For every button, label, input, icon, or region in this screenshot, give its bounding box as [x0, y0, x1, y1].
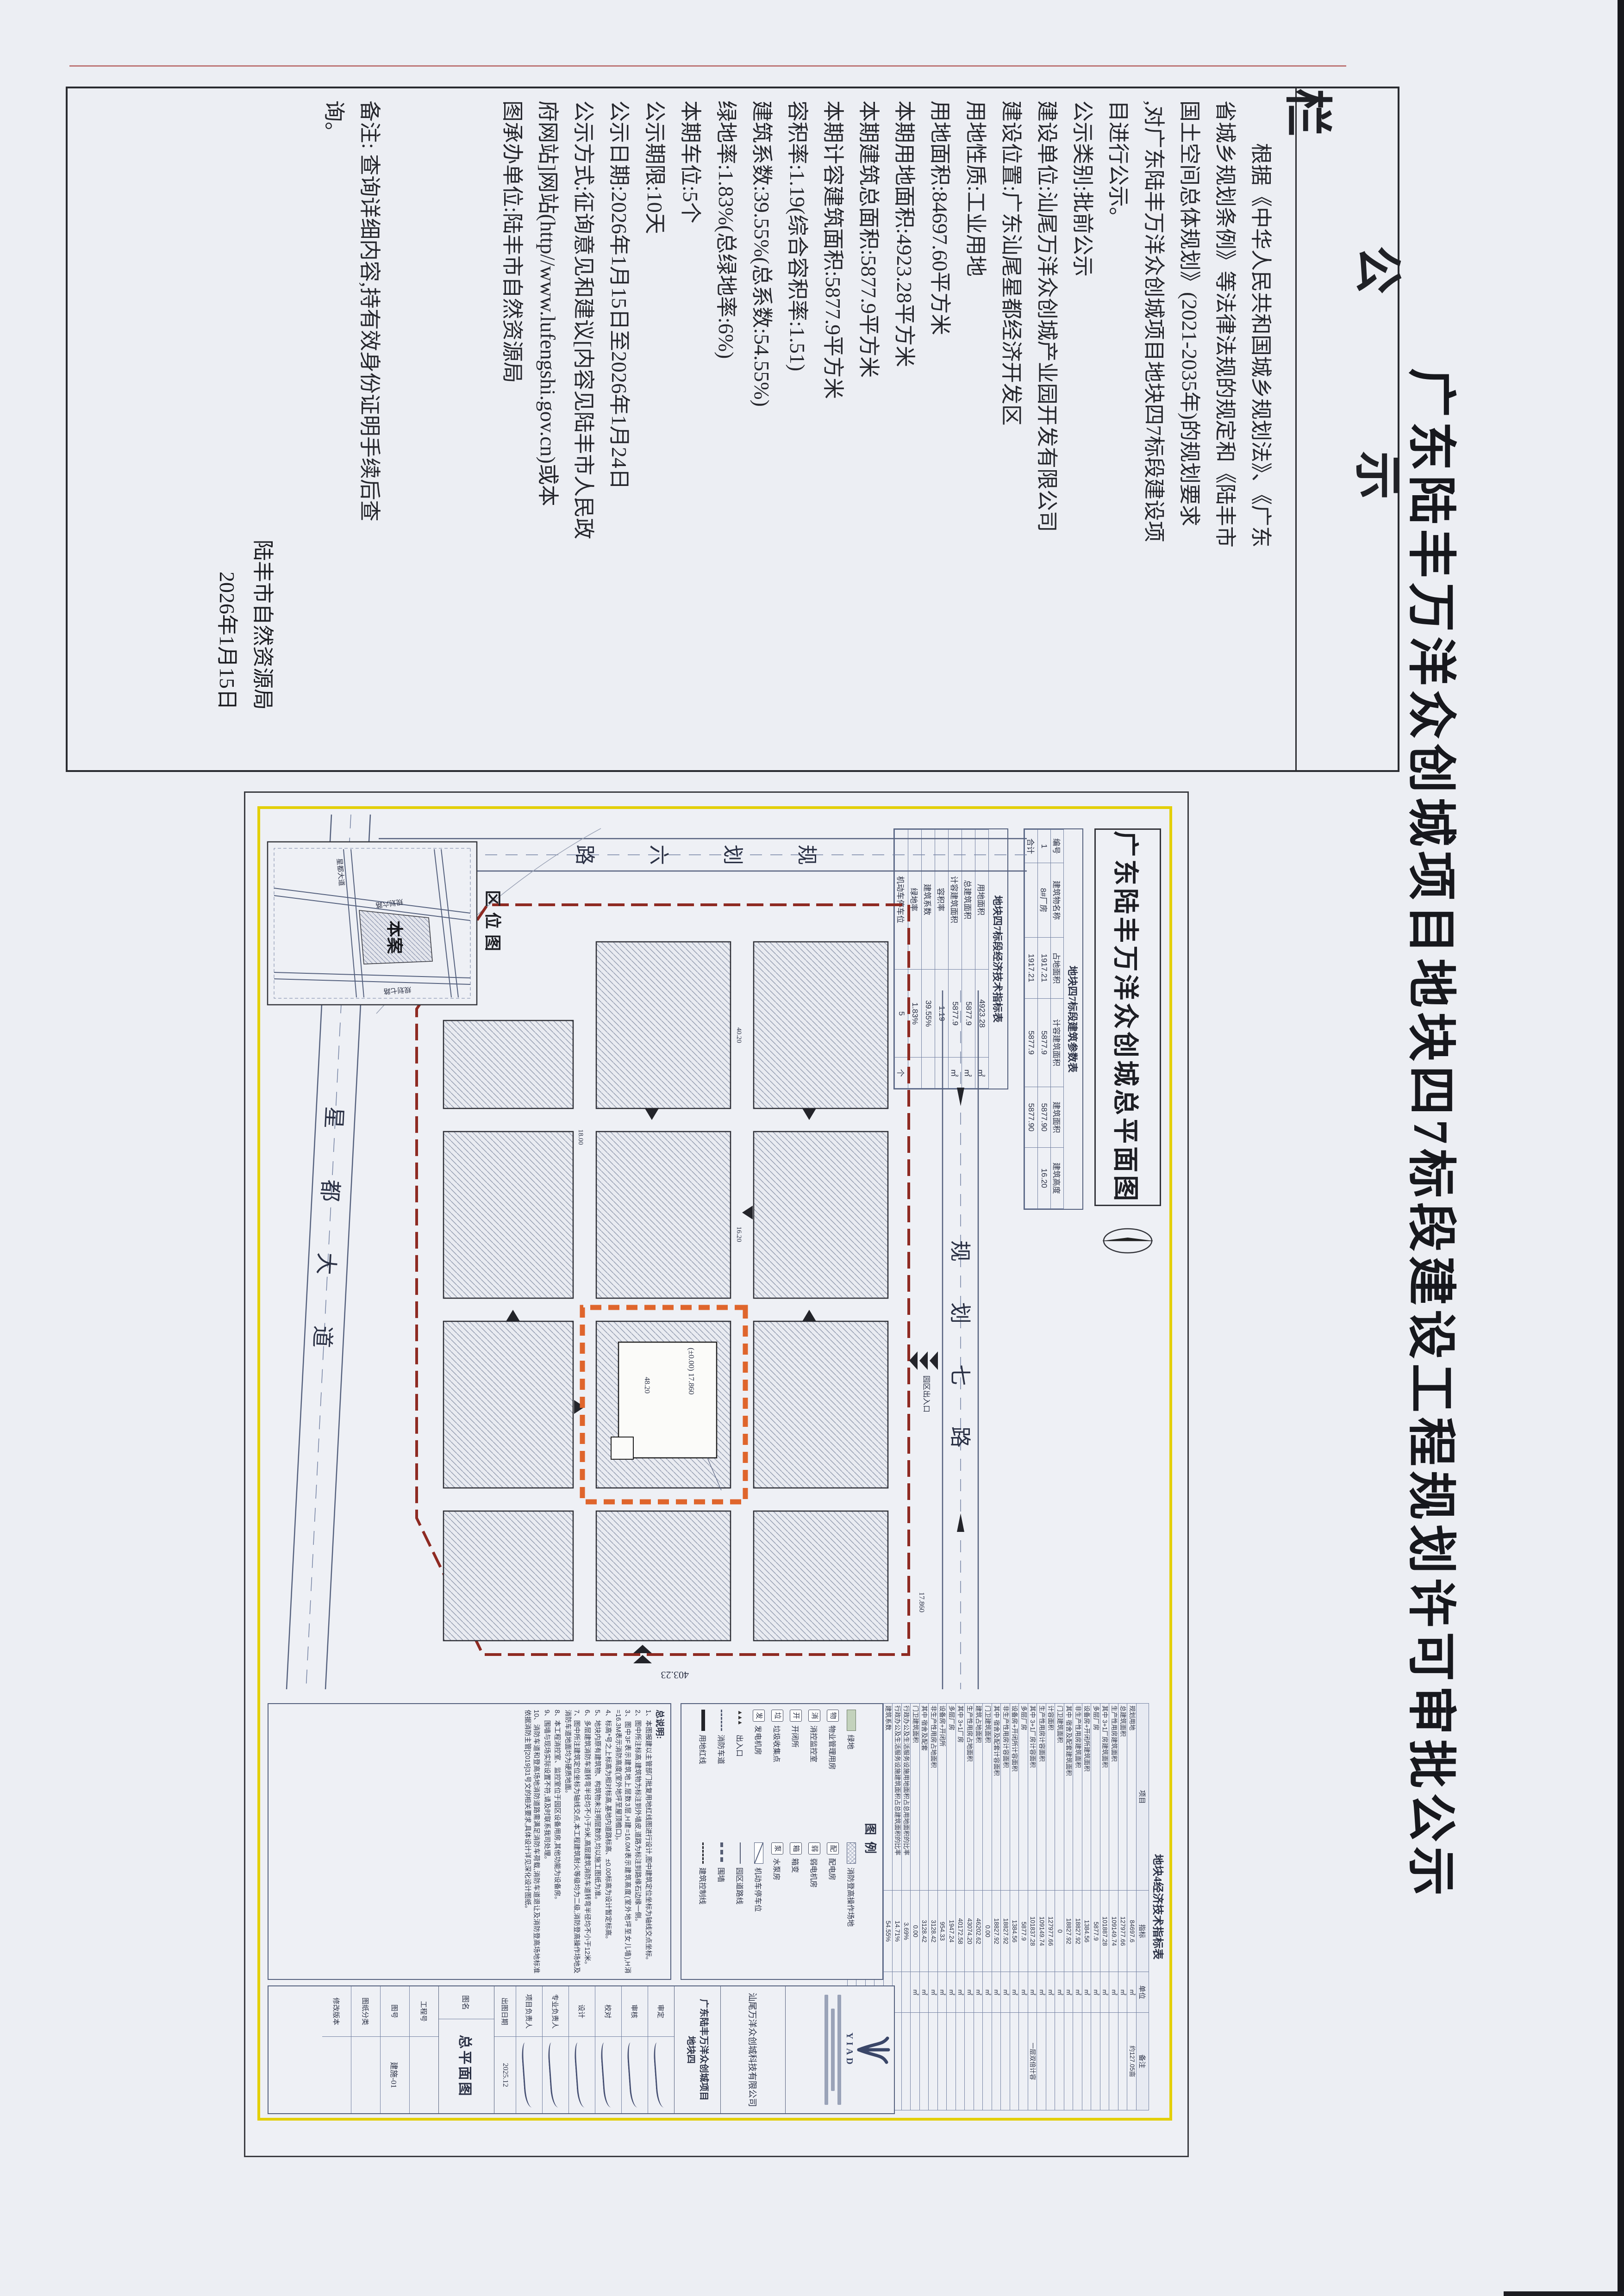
legend-item: 配配电房: [824, 1842, 842, 1974]
date-label: 出图日期: [494, 1986, 516, 2037]
table-cell: [1055, 2013, 1064, 2110]
legend-item: 绿地: [842, 1709, 861, 1842]
legend-label: 消控监控室: [809, 1725, 820, 1762]
legend-item: 弱弱电机房: [805, 1842, 824, 1974]
notice-box: 公示栏 根据《中华人民共和国城乡规划法》、《广东省城乡规划条例》等法律法规的规定…: [66, 87, 1399, 772]
signature-row: 专业负责人: [542, 1986, 568, 2113]
legend-item: 出入口: [731, 1709, 750, 1842]
building-blocks: [443, 942, 888, 1641]
row-label: 修改版本: [322, 1986, 351, 2037]
north-arrow-icon: [1098, 1220, 1157, 1262]
road-label-west-char: 划: [721, 845, 744, 865]
col-header: 单位: [1137, 1972, 1149, 2013]
table-cell: ㎡: [1001, 1972, 1010, 2013]
table-cell: 5877.9: [1091, 1891, 1100, 1972]
svg-text:16.20: 16.20: [735, 1226, 743, 1242]
legend-label: 配电房: [827, 1858, 838, 1880]
table-cell: ㎡: [1064, 1972, 1074, 2013]
legend-label: 弱电机房: [809, 1858, 820, 1888]
signature-row: 设计: [568, 1986, 595, 2113]
col-header: 编号: [1051, 830, 1064, 863]
table-cell: [911, 2013, 920, 2110]
chip-icon: 发: [753, 1710, 765, 1722]
thick-icon: [701, 1710, 705, 1731]
rotated-landscape-document: 广东陆丰万洋众创城项目地块四7标段建设工程规划许可审批公示 公示栏 根据《中华人…: [0, 0, 1624, 2296]
table-cell: 非生产性用房建筑面积: [1073, 1704, 1082, 1891]
table-cell: 0: [1055, 1891, 1064, 1972]
green-icon: [847, 1710, 856, 1731]
table-row: 非生产性用房建筑面积18827.92㎡: [1073, 1704, 1082, 2110]
legend-label: 消防登高操作场地: [846, 1867, 857, 1927]
note-line: 3、图中3F表示建筑地上层数3层,H建=16.0M表示建筑高度(室外地坪至女儿墙…: [613, 1710, 631, 1973]
table-cell: 1947.24: [947, 1891, 956, 1972]
table-row: 其中 3+1厂房计容面积101837.28㎡一层双倍计容: [1028, 1704, 1037, 2110]
signature-label: 校对: [595, 1986, 621, 2037]
legend-item: 物物业管理用房: [824, 1709, 842, 1842]
table-cell: 生产性用房计容面积: [1037, 1704, 1046, 1891]
table-cell: 行政办公及生活服务设施建筑面积占总建筑面积的比率: [893, 1704, 902, 1891]
legend-label: 物业管理用房: [827, 1725, 838, 1770]
table-cell: ㎡: [1109, 1972, 1118, 2013]
table-row: 多层厂房5877.9㎡: [1019, 1704, 1028, 2110]
chip-icon: 泵: [771, 1842, 783, 1854]
road-label-south: 星都大道: [306, 1106, 346, 1399]
stamp-text-bar: [837, 1995, 841, 2105]
general-notes: 总说明: 1、本图报建以主管部门批复用地红线图进行设计,图中建筑定位坐标为轴线交…: [268, 1703, 671, 1980]
table-cell: ㎡: [911, 1972, 920, 2013]
notice-line: 询。: [316, 100, 352, 757]
table-cell: 其中 宿舍及配套建筑面积: [1064, 1704, 1074, 1891]
table-cell: 109149.74: [1109, 1891, 1118, 1972]
table-row: 建筑占地面积46202.62㎡: [974, 1704, 983, 2110]
table-cell: [965, 2013, 974, 2110]
table-cell: ㎡: [1100, 1972, 1110, 2013]
dashdot-icon: [703, 1842, 704, 1864]
notice-line: 建筑系数:39.55%(总系数:54.55%): [744, 100, 780, 757]
legend-label: 垃圾收集点: [772, 1725, 783, 1762]
table-cell: [956, 2013, 965, 2110]
table-cell: ㎡: [947, 1972, 956, 2013]
table-cell: [929, 2013, 938, 2110]
legend-item: 围墙: [712, 1842, 731, 1974]
table-cell: 0.00: [983, 1891, 992, 1972]
table-cell: [1118, 2013, 1128, 2110]
table-row: 门卫建筑面积0.00㎡: [983, 1704, 992, 2110]
col-header: 备注: [1137, 2013, 1149, 2110]
table-title: 地块4经济技术指标表: [1149, 1703, 1168, 2110]
notice-body: 根据《中华人民共和国城乡规划法》、《广东省城乡规划条例》等法律法规的规定和《陆丰…: [281, 88, 1295, 770]
table-cell: 43074.20: [965, 1891, 974, 1972]
location-inset: 区位图 本案 规划六路 星都大道 规划七路: [265, 840, 504, 1007]
table-cell: 其中 3+1厂房建筑面积: [1100, 1704, 1110, 1891]
figname-label: 图名: [439, 1986, 494, 2019]
inset-site-label: 本案: [385, 921, 404, 954]
scan-edge-strip: [1618, 0, 1624, 2296]
table-row: 多层厂房1947.24㎡: [947, 1704, 956, 2110]
table-cell: [1037, 2013, 1046, 2110]
table-cell: 非生产性用房占地面积: [929, 1704, 938, 1891]
table-cell: [1082, 2013, 1092, 2110]
svg-text:17.860: 17.860: [918, 1592, 925, 1612]
table-row: 其中 3+1厂房40172.58㎡: [956, 1704, 965, 2110]
design-institute-stamp: YIAD: [785, 1986, 894, 2113]
handwritten-signature: [521, 2042, 537, 2108]
notice-line: 府网站]网站(http//www.lufengshi.gov.cn)或本: [530, 100, 566, 757]
notice-line: [281, 100, 316, 757]
notice-board-header: 公示栏: [1295, 88, 1398, 770]
road-label-west-char: 路: [573, 845, 596, 865]
red-margin-line: [69, 65, 1346, 67]
table-cell: [1109, 2013, 1118, 2110]
notice-line: 目进行公示。: [1100, 100, 1136, 757]
note-line: 9、围墙与现场实际设置不符,请及时联系我司处理。: [542, 1710, 551, 1973]
handwritten-signature: [627, 2042, 643, 2108]
legend-label: 园区道路线: [735, 1867, 746, 1904]
table-row: 行政办公及生活服务设施用地面积占总用地面积的比率3.69%: [902, 1704, 911, 2110]
notice-line: 建设位置:广东汕尾星都经济开发区: [993, 100, 1029, 757]
table-cell: 其中 3+1厂房: [956, 1704, 965, 1891]
table-cell: [1100, 2013, 1110, 2110]
table-cell: 总建筑面积: [1118, 1704, 1128, 1891]
yiad-logo-icon: [857, 2024, 890, 2075]
legend-label: 箱变: [790, 1858, 801, 1873]
table-cell: ㎡: [983, 1972, 992, 2013]
table-cell: 门卫建筑面积: [983, 1704, 992, 1891]
table-cell: [1091, 2013, 1100, 2110]
table-row: 其中 宿舍及配套计容面积18827.92㎡: [992, 1704, 1001, 2110]
chip-icon: 物: [827, 1710, 839, 1722]
signature-label: 项目负责人: [516, 1986, 542, 2037]
legend-label: 绿地: [846, 1735, 857, 1749]
notice-line: ,对广东陆丰万洋众创城项目地块四7标段建设项: [1136, 100, 1172, 757]
stamp-text-bar: [824, 1995, 828, 2105]
thin-icon: [740, 1842, 741, 1864]
notice-line: 容积率:1.19(综合容积率:1.51): [780, 100, 815, 757]
drawing-title: 广东陆丰万洋众创城总平面图: [1094, 828, 1161, 1206]
table-row: 总建筑面积127977.66㎡: [1118, 1704, 1128, 2110]
signature-label: 设计: [569, 1986, 595, 2037]
notice-line: [459, 100, 494, 757]
table-cell: 建筑占地面积: [974, 1704, 983, 1891]
signature-row: 审定: [648, 1986, 674, 2113]
col-header: 建筑物名称: [1051, 863, 1064, 937]
chip-icon: 配: [827, 1842, 839, 1854]
col-header: 计容建筑面积: [1051, 998, 1064, 1087]
legend-item: 建筑控制线: [694, 1842, 712, 1974]
legend-label: 用地红线: [698, 1735, 709, 1764]
table-cell: 1384.56: [1010, 1891, 1019, 1972]
note-line: 2、图中所注标高:建筑物为标注到外墙皮,道路为标注到路缘石边缘一侧。: [633, 1710, 642, 1973]
row-label: 工程号: [410, 1986, 438, 2037]
chip-icon: 弱: [808, 1842, 820, 1854]
scanned-notice-page: { "page": { "title": "广东陆丰万洋众创城项目地块四7标段建…: [0, 0, 1624, 2296]
legend-item: 发发电机房: [750, 1709, 768, 1842]
table-cell: [1010, 2013, 1019, 2110]
legend-grid: 绿地消防登高操作场地物物业管理用房配配电房消消控监控室弱弱电机房开开闭所箱箱变垃…: [694, 1709, 861, 1974]
signature-label: 专业负责人: [543, 1986, 568, 2037]
legend: 图例 绿地消防登高操作场地物物业管理用房配配电房消消控监控室弱弱电机房开开闭所箱…: [681, 1703, 883, 1980]
table-row: 门卫建筑面积0㎡: [1055, 1704, 1064, 2110]
entrance-label: 园区出入口: [922, 1375, 931, 1412]
table-row: 多层厂房5877.9㎡: [1091, 1704, 1100, 2110]
legend-item: 泵水泵房: [768, 1842, 787, 1974]
stamp-text-bar: [831, 2009, 835, 2091]
project-line: 广东陆丰万洋众创城项目: [698, 1999, 711, 2101]
notice-line: [423, 100, 459, 757]
legend-item: 用地红线: [694, 1709, 712, 1842]
road-label-west-char: 规: [795, 845, 818, 865]
table-cell: 0.00: [911, 1891, 920, 1972]
legend-item: 箱箱变: [787, 1842, 805, 1974]
col-header: 建筑面积: [1051, 1087, 1064, 1148]
note-line: 6、多层建筑消防车道转弯半径均不小于9米,高层建筑消防车道转弯半径均不小于12米…: [582, 1710, 592, 1973]
notice-line: 用地面积:84697.60平方米: [922, 100, 958, 757]
table-cell: [992, 2013, 1001, 2110]
table-cell: ㎡: [1037, 1972, 1046, 2013]
table-cell: 规划用地: [1127, 1704, 1137, 1891]
table-cell: ㎡: [1019, 1972, 1028, 2013]
notice-line: 绿地率:1.83%(总绿地率:6%): [708, 100, 744, 757]
note-line: 8、本工程消控室、监控室位于园区设备用房,其他功能为设备房。: [552, 1710, 562, 1973]
legend-label: 消防车道: [716, 1735, 727, 1764]
table-cell: 非生产性用房计容面积: [1001, 1704, 1010, 1891]
row-label: 图号: [381, 1986, 409, 2037]
notice-line: 公示期限:10天: [637, 100, 673, 757]
table-cell: [1001, 2013, 1010, 2110]
notice-line: 本期用地面积:4923.28平方米: [887, 100, 922, 757]
table-cell: 3128.42: [929, 1891, 938, 1972]
table-cell: 建筑系数: [884, 1704, 893, 1891]
table-cell: ㎡: [965, 1972, 974, 2013]
table-cell: 101887.28: [1100, 1891, 1110, 1972]
table-cell: [938, 2013, 947, 2110]
table-cell: 门卫建筑面积: [911, 1704, 920, 1891]
title-block: YIAD 汕尾万洋众创城科技有限公司 广东陆丰万洋众创城项目 地块四 审定 审核…: [268, 1985, 895, 2114]
chip-icon: 箱: [790, 1842, 802, 1854]
table-cell: 84697.6: [1127, 1891, 1137, 1972]
table-cell: 954.33: [938, 1891, 947, 1972]
table-cell: ㎡: [956, 1972, 965, 2013]
table-cell: 127977.66: [1046, 1891, 1056, 1972]
table-cell: 3128.42: [920, 1891, 929, 1972]
figure-name-cell: 图名 总平面图: [438, 1986, 494, 2113]
notice-line: 本期计容建筑面积:5877.9平方米: [815, 100, 851, 757]
table-row: 非生产性用房占地面积3128.42㎡: [929, 1704, 938, 2110]
notice-line: 建设单位:汕尾万洋众创城产业园开发有限公司: [1029, 100, 1065, 757]
table-cell: [1019, 2013, 1028, 2110]
table-header: 编号 建筑物名称 占地面积 计容建筑面积 建筑面积 建筑高度: [1051, 830, 1064, 1209]
notes-list: 1、本图报建以主管部门批复用地红线图进行设计,图中建筑定位坐标为轴线交点坐标。2…: [523, 1710, 653, 1973]
table-cell: ㎡: [938, 1972, 947, 2013]
date-value: 2025.12: [501, 2037, 509, 2113]
legend-title: 图例: [862, 1709, 880, 1974]
dim-label: 48.20: [643, 1377, 651, 1394]
signature-label: 审核: [622, 1986, 648, 2037]
table-cell: 生产性用房建筑面积: [1109, 1704, 1118, 1891]
notice-sign-date: 2026年1月15日: [209, 88, 245, 770]
table-cell: [983, 2013, 992, 2110]
notice-line: 公示日期:2026年1月15日至2026年1月24日: [601, 100, 637, 757]
table-cell: 多层厂房: [1019, 1704, 1028, 1891]
notes-title: 总说明:: [654, 1710, 667, 1973]
svg-text:40.20: 40.20: [735, 1027, 743, 1043]
location-inset-map: 区位图 本案 规划六路 星都大道 规划七路: [265, 840, 504, 1007]
table-cell: 18827.92: [992, 1891, 1001, 1972]
table-cell: 门卫建筑面积: [1055, 1704, 1064, 1891]
table-cell: [1073, 2013, 1082, 2110]
signature-label: 审定: [648, 1986, 674, 2037]
notice-line: 本期车位:5个: [673, 100, 708, 757]
legend-label: 围墙: [716, 1867, 727, 1882]
table-cell: 其中 宿舍及配套: [920, 1704, 929, 1891]
legend-label: 开闭所: [790, 1725, 801, 1748]
table-row: 设备房+开闭所计容面积1384.56㎡: [1010, 1704, 1019, 2110]
legend-item: 消消控监控室: [805, 1709, 824, 1842]
road-label-north: 规划七路: [948, 1240, 972, 1488]
legend-item: 消防登高操作场地: [842, 1842, 861, 1974]
table-row: 计容面积127977.66㎡: [1046, 1704, 1056, 2110]
table-cell: 3.69%: [902, 1891, 911, 1972]
table-cell: ㎡: [974, 1972, 983, 2013]
table-cell: ㎡: [920, 1972, 929, 2013]
fence-icon: [720, 1842, 723, 1864]
signature-row: 审核: [621, 1986, 648, 2113]
notice-line: 省城乡规划条例》等法律法规的规定和《陆丰市: [1207, 100, 1243, 757]
legend-label: 出入口: [735, 1735, 746, 1757]
table-row: 其中 宿舍及配套建筑面积18827.92㎡: [1064, 1704, 1074, 2110]
handwritten-signature: [574, 2042, 590, 2108]
col-header: 项目: [1137, 1704, 1149, 1891]
table-cell: 其中 宿舍及配套计容面积: [992, 1704, 1001, 1891]
notice-sign-org: 陆丰市自然资源局: [245, 88, 281, 770]
signature-rows: 审定 审核 校对 设计 专业负责人 项目负责人: [494, 1986, 674, 2113]
boxdiag-icon: [754, 1842, 763, 1864]
chip-icon: 消: [808, 1710, 820, 1722]
level-annotation: (±0.00) 17.860: [687, 1348, 696, 1394]
figname-value: 总平面图: [456, 2019, 477, 2113]
titleblock-row: 图纸分类: [351, 1986, 380, 2113]
notice-line: 根据《中华人民共和国城乡规划法》、《广东: [1243, 100, 1279, 757]
table-cell: 约127.05亩: [1127, 2013, 1137, 2110]
table-cell: ㎡: [1118, 1972, 1128, 2013]
table-cell: ㎡: [992, 1972, 1001, 2013]
titleblock-row: 工程号: [409, 1986, 438, 2113]
table-cell: ㎡: [1073, 1972, 1082, 2013]
titleblock-row: 修改版本: [322, 1986, 351, 2113]
stamp-logo-text: YIAD: [844, 1986, 855, 2113]
table-cell: ㎡: [1082, 1972, 1092, 2013]
table-row: 规划用地84697.6㎡约127.05亩: [1127, 1704, 1137, 2110]
table-cell: 多层厂房: [1091, 1704, 1100, 1891]
notice-line: 备注: 查询详细内容,持有效身份证明手续后查: [352, 100, 387, 757]
table-cell: 一层双倍计容: [1028, 2013, 1037, 2110]
table-cell: 多层厂房: [947, 1704, 956, 1891]
table-row: 生产性用房占地面积43074.20㎡: [965, 1704, 974, 2110]
date-row: 出图日期 2025.12: [494, 1986, 516, 2113]
legend-label: 水泵房: [772, 1858, 783, 1880]
scan-edge-strip: [1504, 2291, 1624, 2296]
col-header: 建筑高度: [1051, 1148, 1064, 1209]
table-header: 项目 指标 单位 备注: [1137, 1704, 1149, 2110]
notice-line: 图承办单位:陆丰市自然资源局: [494, 100, 530, 757]
row-value: 建施-01: [389, 2037, 401, 2113]
table-cell: [947, 2013, 956, 2110]
table-row: 设备房+开闭所954.33㎡: [938, 1704, 947, 2110]
col-header: 指标: [1137, 1891, 1149, 1972]
owner-company-cell: 汕尾万洋众创城科技有限公司: [720, 1986, 785, 2113]
table-row: 设备房+开闭所建筑面积1384.56㎡: [1082, 1704, 1092, 2110]
table-cell: 5877.9: [1019, 1891, 1028, 1972]
road-label-west-char: 六: [647, 845, 670, 865]
svg-text:18.00: 18.00: [577, 1129, 584, 1145]
table-cell: 14.71%: [893, 1891, 902, 1972]
table-cell: 18827.92: [1001, 1891, 1010, 1972]
table-cell: 设备房+开闭所建筑面积: [1082, 1704, 1092, 1891]
table-cell: [920, 2013, 929, 2110]
handwritten-signature: [548, 2042, 564, 2108]
table-cell: ㎡: [1091, 1972, 1100, 2013]
note-line: 1、本图报建以主管部门批复用地红线图进行设计,图中建筑定位坐标为轴线交点坐标。: [643, 1710, 653, 1973]
col-header: 占地面积: [1051, 938, 1064, 999]
notice-line: 本期建筑总面积:5877.9平方米: [851, 100, 887, 757]
table-cell: [902, 2013, 911, 2110]
notice-line: 公示方式:征询意见和建议[内容见陆丰市人民政: [566, 100, 601, 757]
legend-label: 发电机房: [753, 1725, 764, 1755]
notice-line: 用地性质:工业用地: [958, 100, 993, 757]
table-row: 门卫建筑面积0.00㎡: [911, 1704, 920, 2110]
legend-label: 机动车停车位: [753, 1867, 764, 1912]
signature-row: 校对: [595, 1986, 621, 2113]
legend-label: 建筑控制线: [698, 1867, 709, 1904]
table-cell: 40172.58: [956, 1891, 965, 1972]
legend-item: 开开闭所: [787, 1709, 805, 1842]
signature-row: 项目负责人: [516, 1986, 542, 2113]
table-cell: 54.55%: [884, 1891, 893, 1972]
table-cell: 其中 3+1厂房计容面积: [1028, 1704, 1037, 1891]
dash-icon: [721, 1710, 723, 1731]
table-cell: 109149.74: [1037, 1891, 1046, 1972]
project-line: 地块四: [685, 2036, 698, 2064]
table-cell: 1384.56: [1082, 1891, 1092, 1972]
titleblock-row: 图号 建施-01: [380, 1986, 409, 2113]
table-cell: 18827.92: [1064, 1891, 1074, 1972]
table-cell: 生产性用房占地面积: [965, 1704, 974, 1891]
legend-item: 机动车停车位: [750, 1842, 768, 1974]
table-cell: 设备房+开闭所计容面积: [1010, 1704, 1019, 1891]
table-cell: ㎡: [929, 1972, 938, 2013]
table-row: 其中 3+1厂房建筑面积101887.28㎡: [1100, 1704, 1110, 2110]
table-cell: 46202.62: [974, 1891, 983, 1972]
hatchx-icon: [847, 1842, 856, 1864]
table-cell: ㎡: [1010, 1972, 1019, 2013]
table-cell: [1046, 2013, 1056, 2110]
legend-item: 垃垃圾收集点: [768, 1709, 787, 1842]
chip-icon: 垃: [771, 1710, 783, 1722]
table-cell: ㎡: [1055, 1972, 1064, 2013]
table-cell: 101837.28: [1028, 1891, 1037, 1972]
chev-icon: [736, 1710, 745, 1731]
table-cell: [1064, 2013, 1074, 2110]
row-label: 图纸分类: [351, 1986, 380, 2037]
table-cell: 计容面积: [1046, 1704, 1056, 1891]
table-row: 生产性用房建筑面积109149.74㎡: [1109, 1704, 1118, 2110]
inset-title: 区位图: [483, 890, 502, 957]
note-line: 4、标高*号之上标高为相对标高,基地内道路标高、±0.00标高为设计暂定标高。: [603, 1710, 612, 1973]
note-line: 5、地块内原有建筑物、构筑物未注明层数的,均以施工图纸为准。: [593, 1710, 602, 1973]
table-cell: [974, 2013, 983, 2110]
notice-line: [387, 100, 423, 757]
note-line: 10、消防车道和登高场地消防道路需满足消防车荷载,消防车道退让及消防登高场地标准…: [523, 1710, 541, 1973]
